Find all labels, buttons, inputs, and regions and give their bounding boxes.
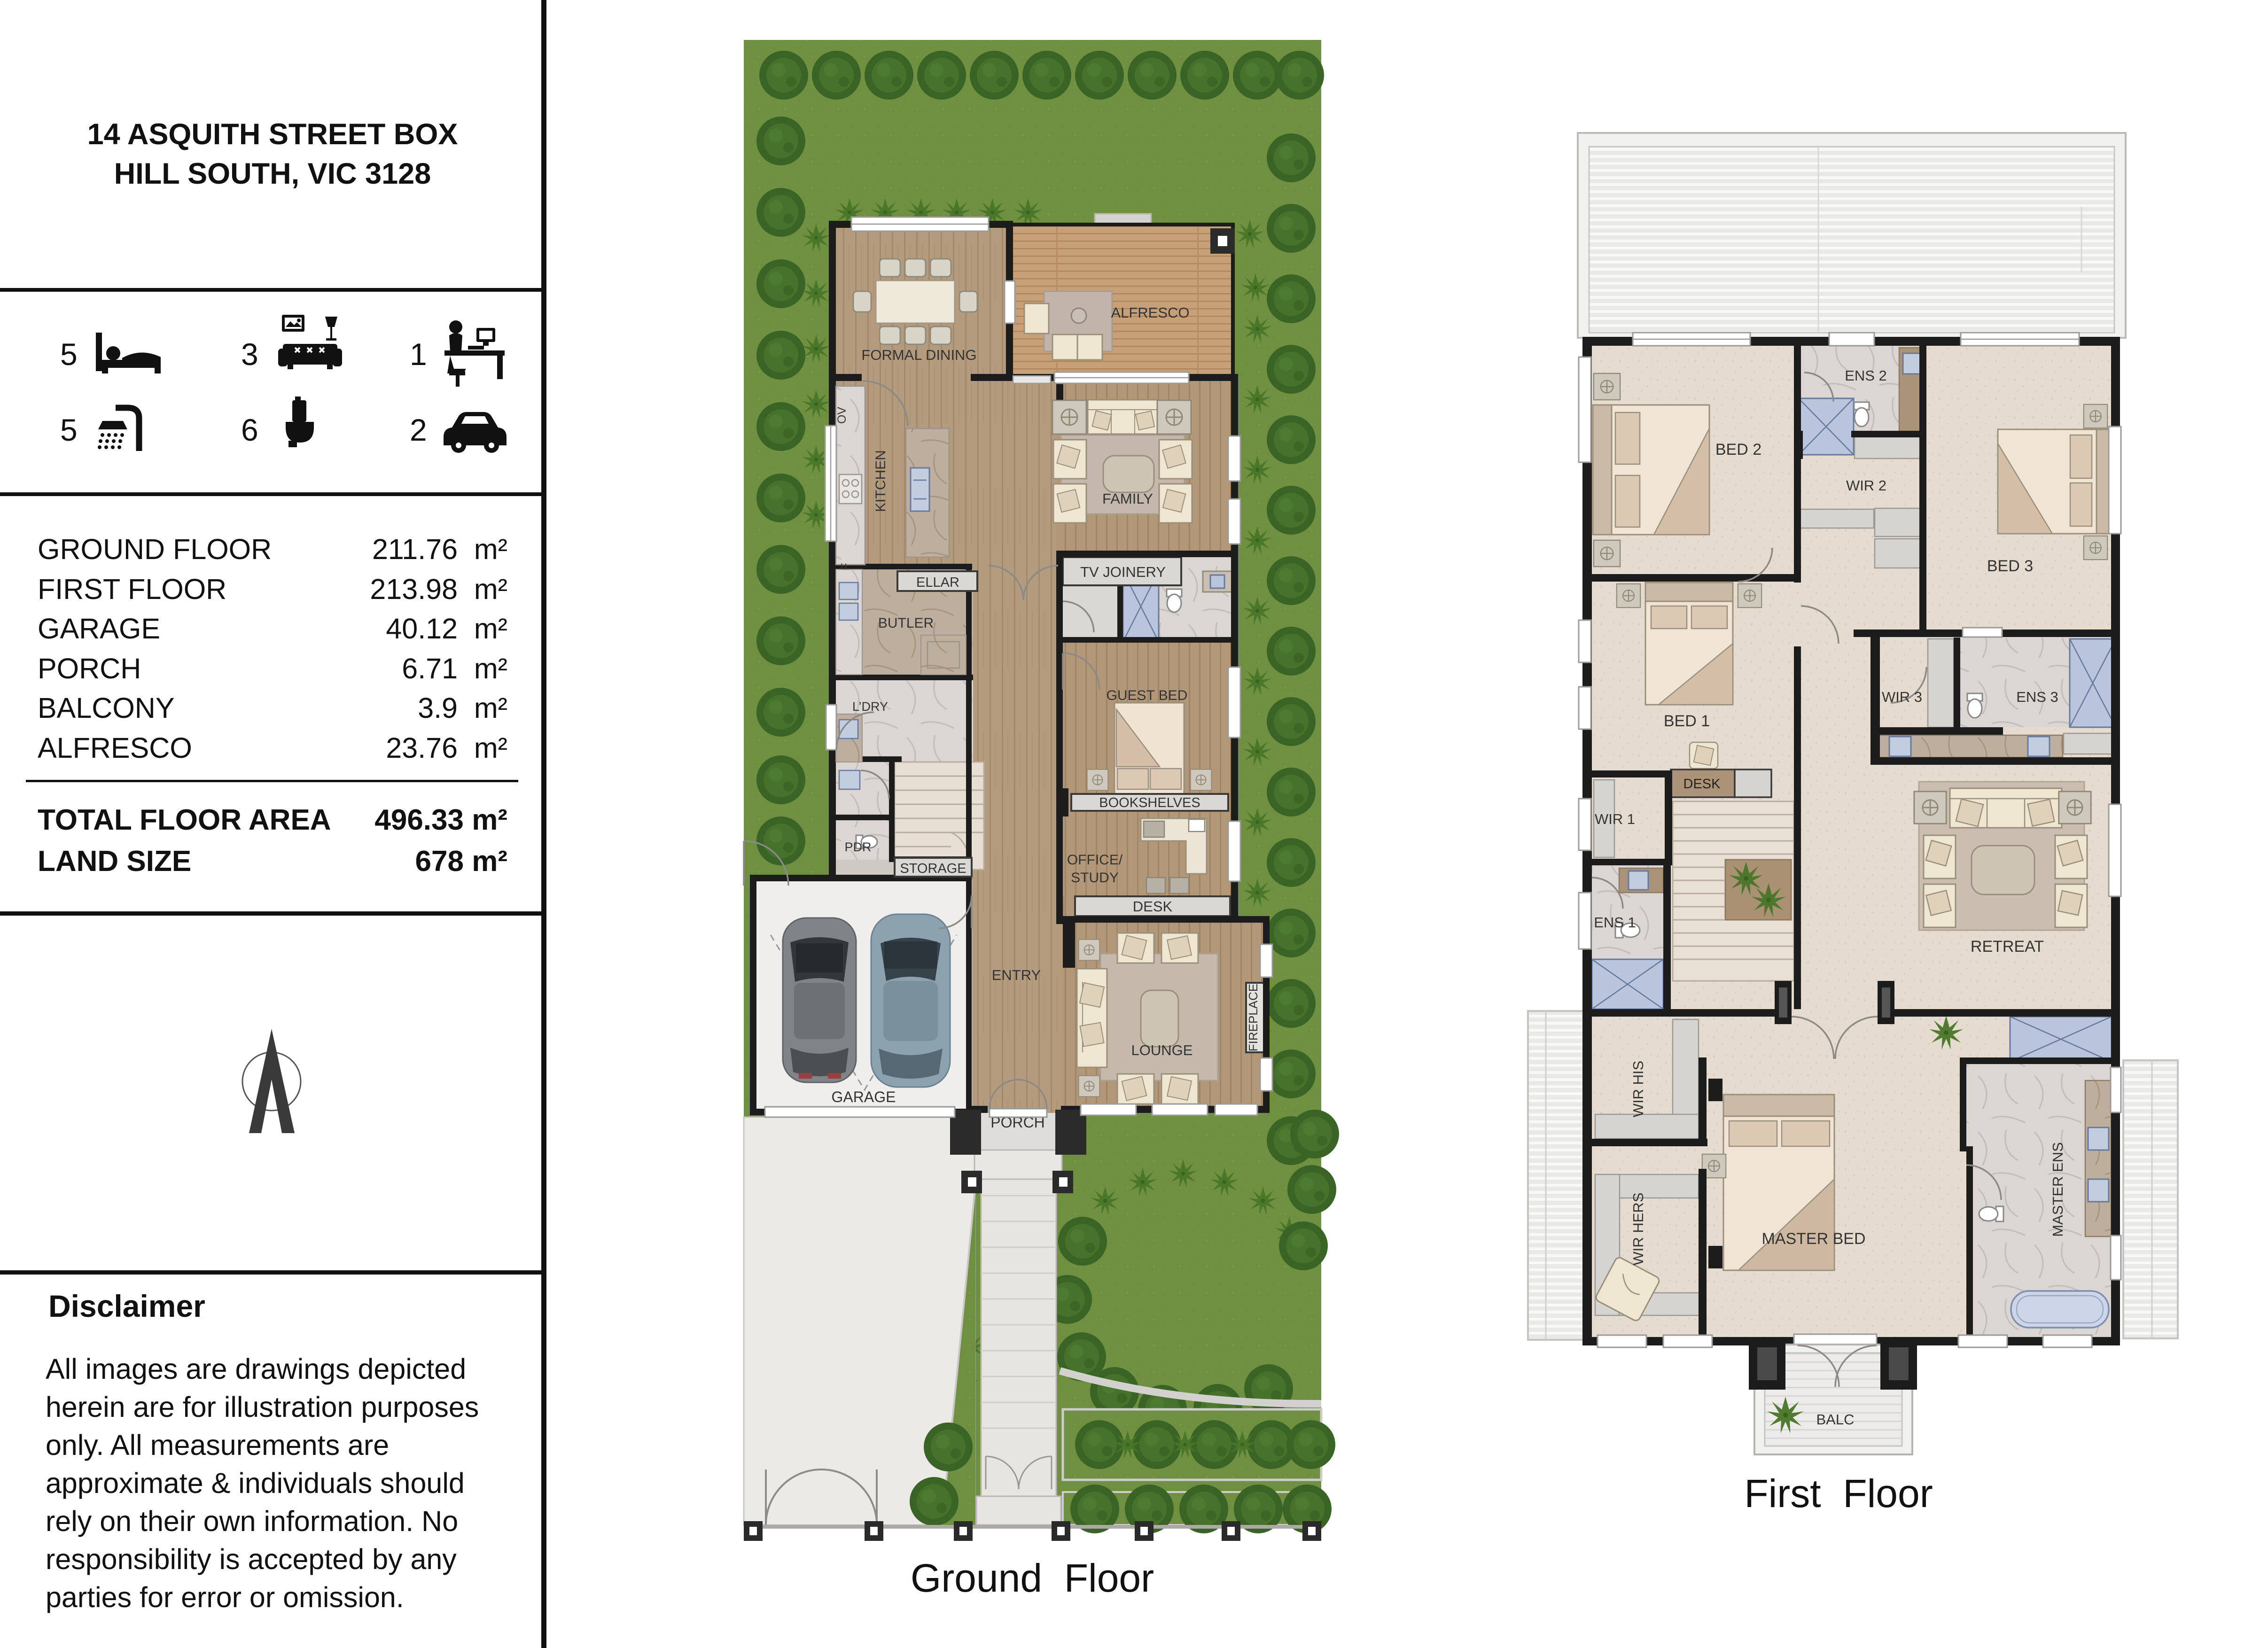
svg-text:STUDY: STUDY	[1071, 870, 1119, 886]
svg-text:FAMILY: FAMILY	[1102, 490, 1153, 507]
svg-text:MASTER BED: MASTER BED	[1761, 1230, 1865, 1248]
svg-text:FIREPLACE: FIREPLACE	[1246, 984, 1260, 1052]
svg-text:PDR: PDR	[844, 840, 871, 854]
svg-text:GARAGE: GARAGE	[832, 1088, 896, 1105]
svg-text:MASTER ENS: MASTER ENS	[2050, 1142, 2066, 1237]
svg-text:First Floor: First Floor	[1744, 1471, 1933, 1516]
svg-text:WIR 2: WIR 2	[1846, 477, 1886, 494]
svg-text:BED 3: BED 3	[1987, 557, 2033, 575]
svg-text:OV: OV	[835, 407, 849, 424]
svg-text:BALC: BALC	[1816, 1411, 1855, 1428]
svg-text:WIR 1: WIR 1	[1595, 811, 1635, 827]
svg-text:ENS 2: ENS 2	[1845, 367, 1887, 384]
svg-text:GUEST BED: GUEST BED	[1107, 688, 1188, 703]
svg-text:LOUNGE: LOUNGE	[1131, 1042, 1193, 1058]
svg-text:ENS 1: ENS 1	[1594, 914, 1636, 931]
svg-text:WIR HERS: WIR HERS	[1630, 1193, 1646, 1266]
svg-text:WIR 3: WIR 3	[1882, 689, 1922, 705]
svg-text:OFFICE/: OFFICE/	[1067, 852, 1123, 868]
svg-text:KITCHEN: KITCHEN	[873, 450, 888, 512]
svg-text:WIR HIS: WIR HIS	[1630, 1061, 1646, 1118]
svg-text:BOOKSHELVES: BOOKSHELVES	[1099, 795, 1200, 810]
svg-text:RETREAT: RETREAT	[1971, 938, 2044, 956]
svg-text:ENTRY: ENTRY	[992, 967, 1041, 983]
svg-text:BED 1: BED 1	[1664, 712, 1710, 730]
svg-text:TV JOINERY: TV JOINERY	[1080, 564, 1166, 580]
svg-text:BED 2: BED 2	[1715, 441, 1761, 459]
svg-text:F: F	[839, 563, 852, 570]
svg-text:STORAGE: STORAGE	[900, 861, 966, 876]
svg-text:L’DRY: L’DRY	[852, 700, 888, 714]
svg-text:ELLAR: ELLAR	[916, 575, 959, 590]
svg-text:FORMAL DINING: FORMAL DINING	[861, 347, 976, 363]
svg-text:Ground Floor: Ground Floor	[911, 1556, 1154, 1600]
svg-text:ALFRESCO: ALFRESCO	[1111, 304, 1189, 321]
svg-text:BUTLER: BUTLER	[878, 615, 934, 631]
svg-text:DESK: DESK	[1683, 777, 1721, 792]
svg-text:ENS 3: ENS 3	[2016, 689, 2058, 705]
svg-text:DESK: DESK	[1133, 898, 1173, 915]
